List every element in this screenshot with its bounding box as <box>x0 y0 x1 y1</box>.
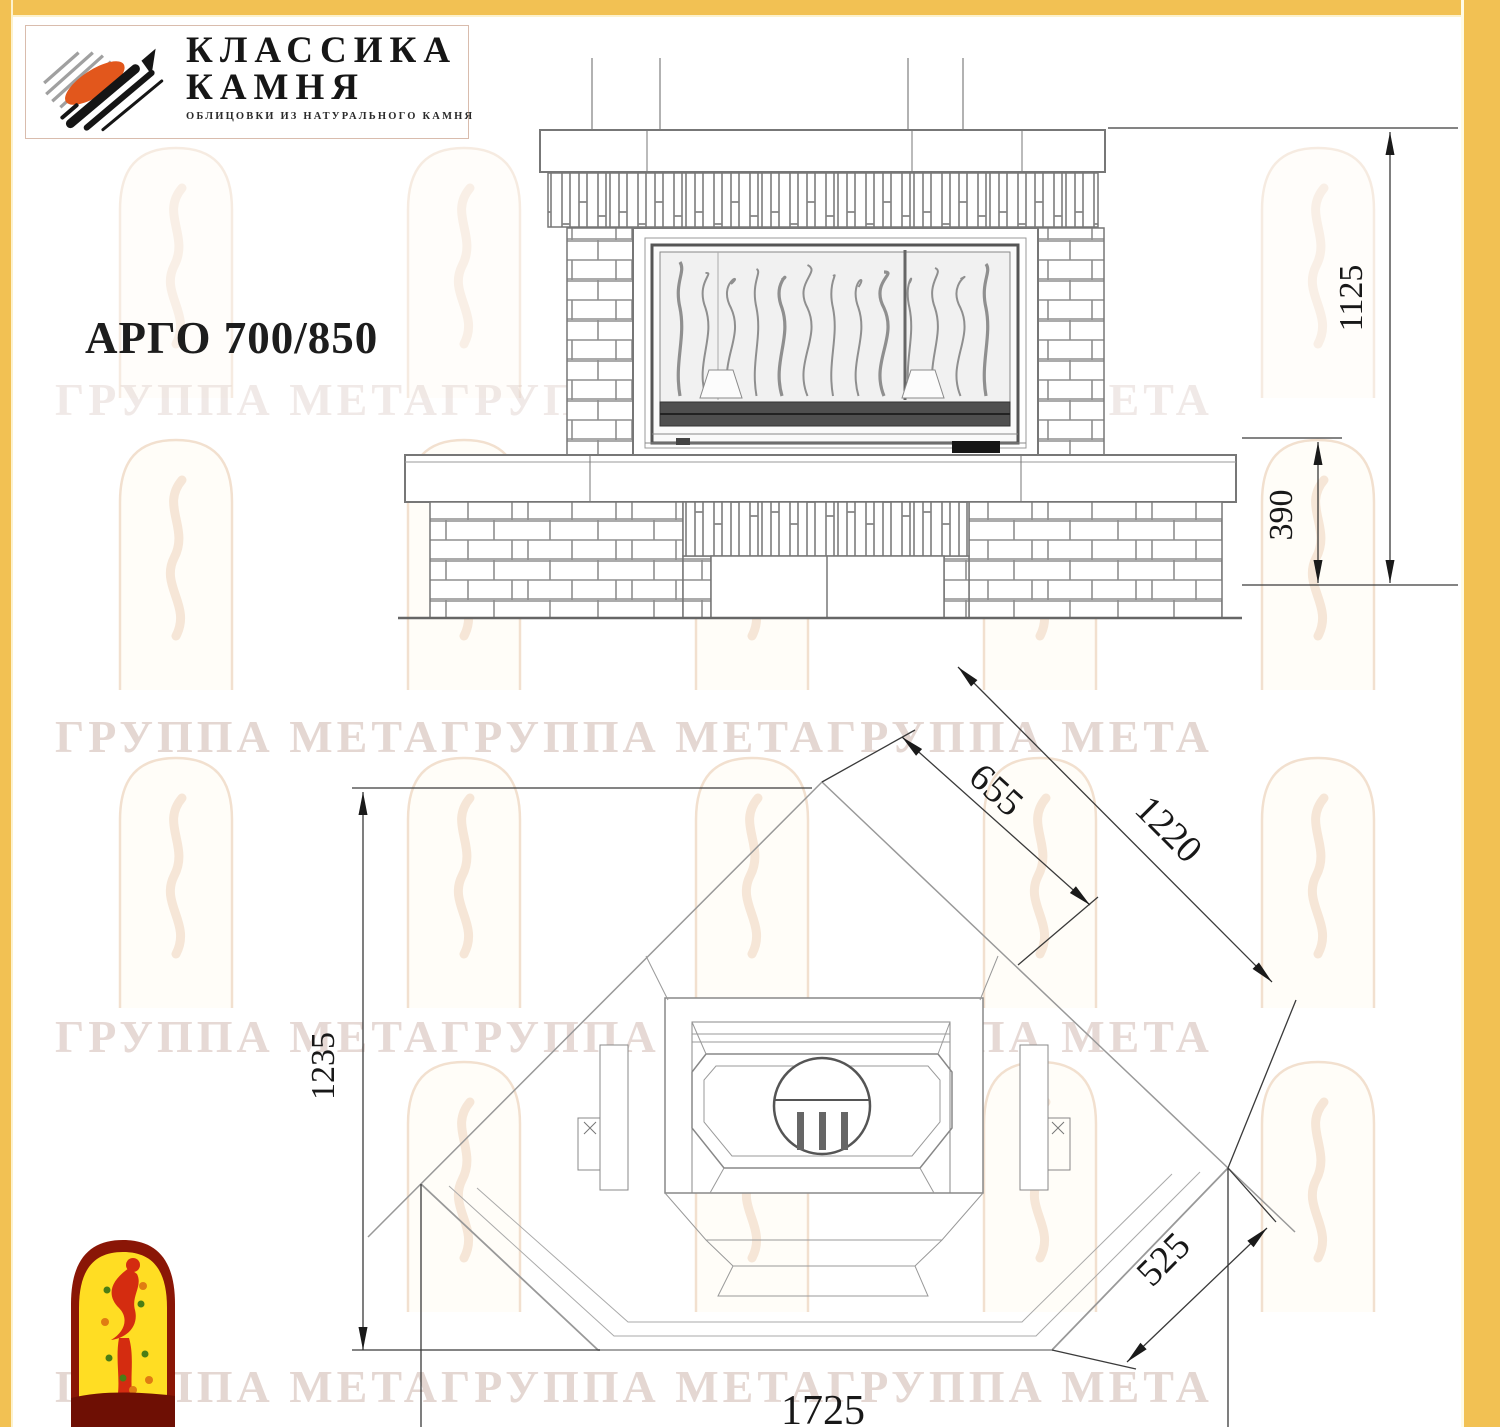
scanned-drawing-page: ГРУППА МЕТАГРУППА МЕТАГРУППА МЕТА ГРУППА… <box>0 0 1500 1427</box>
dimension-label-655: 655 <box>961 755 1031 824</box>
page-border-right <box>1461 0 1500 1427</box>
company-logo-graphic <box>32 30 184 132</box>
front-elevation-view <box>398 58 1242 618</box>
dimension-front-height: 1125 <box>1333 265 1370 332</box>
page-border-left <box>0 0 13 1427</box>
logo-word-kamnya: КАМНЯ <box>186 69 464 106</box>
model-title: АРГО 700/850 <box>85 312 378 364</box>
page-border-top <box>0 0 1500 17</box>
company-logo-box: КЛАССИКА КАМНЯ ОБЛИЦОВКИ ИЗ НАТУРАЛЬНОГО… <box>25 25 469 139</box>
dimension-label-1725: 1725 <box>781 1388 865 1427</box>
logo-subtitle: ОБЛИЦОВКИ ИЗ НАТУРАЛЬНОГО КАМНЯ <box>186 111 464 122</box>
dimension-base-height: 390 <box>1263 490 1300 541</box>
dimension-label-525: 525 <box>1129 1225 1199 1295</box>
dimension-label-1235: 1235 <box>305 1032 342 1100</box>
technical-drawing: 1125 390 <box>0 0 1500 1427</box>
footer-arch-logo <box>58 1232 188 1427</box>
logo-word-klassika: КЛАССИКА <box>186 32 464 69</box>
dimension-label-1220: 1220 <box>1127 788 1210 871</box>
dimension-label-390: 390 <box>1263 490 1300 541</box>
dimension-label-1125: 1125 <box>1333 265 1370 332</box>
